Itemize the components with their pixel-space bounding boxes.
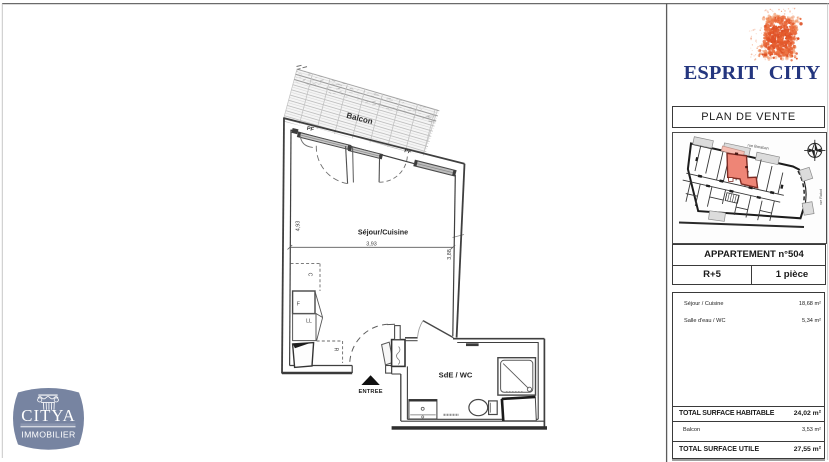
svg-text:ENTREE: ENTREE: [358, 389, 382, 395]
svg-text:IMMOBILIER: IMMOBILIER: [21, 429, 75, 439]
svg-text:LL: LL: [306, 318, 312, 324]
svg-text:Séjour/Cuisine: Séjour/Cuisine: [358, 228, 408, 237]
svg-text:PF: PF: [306, 126, 315, 134]
svg-text:C: C: [307, 273, 313, 277]
svg-text:SdE / WC: SdE / WC: [439, 371, 473, 380]
svg-text:F: F: [297, 302, 300, 308]
svg-text:PF: PF: [404, 148, 413, 156]
svg-text:CITYA: CITYA: [21, 406, 75, 425]
svg-text:R: R: [333, 348, 339, 352]
svg-text:3,88: 3,88: [447, 249, 453, 260]
svg-text:rue Rabot: rue Rabot: [819, 189, 823, 205]
svg-text:3,93: 3,93: [366, 241, 377, 247]
svg-text:4,93: 4,93: [296, 221, 302, 232]
